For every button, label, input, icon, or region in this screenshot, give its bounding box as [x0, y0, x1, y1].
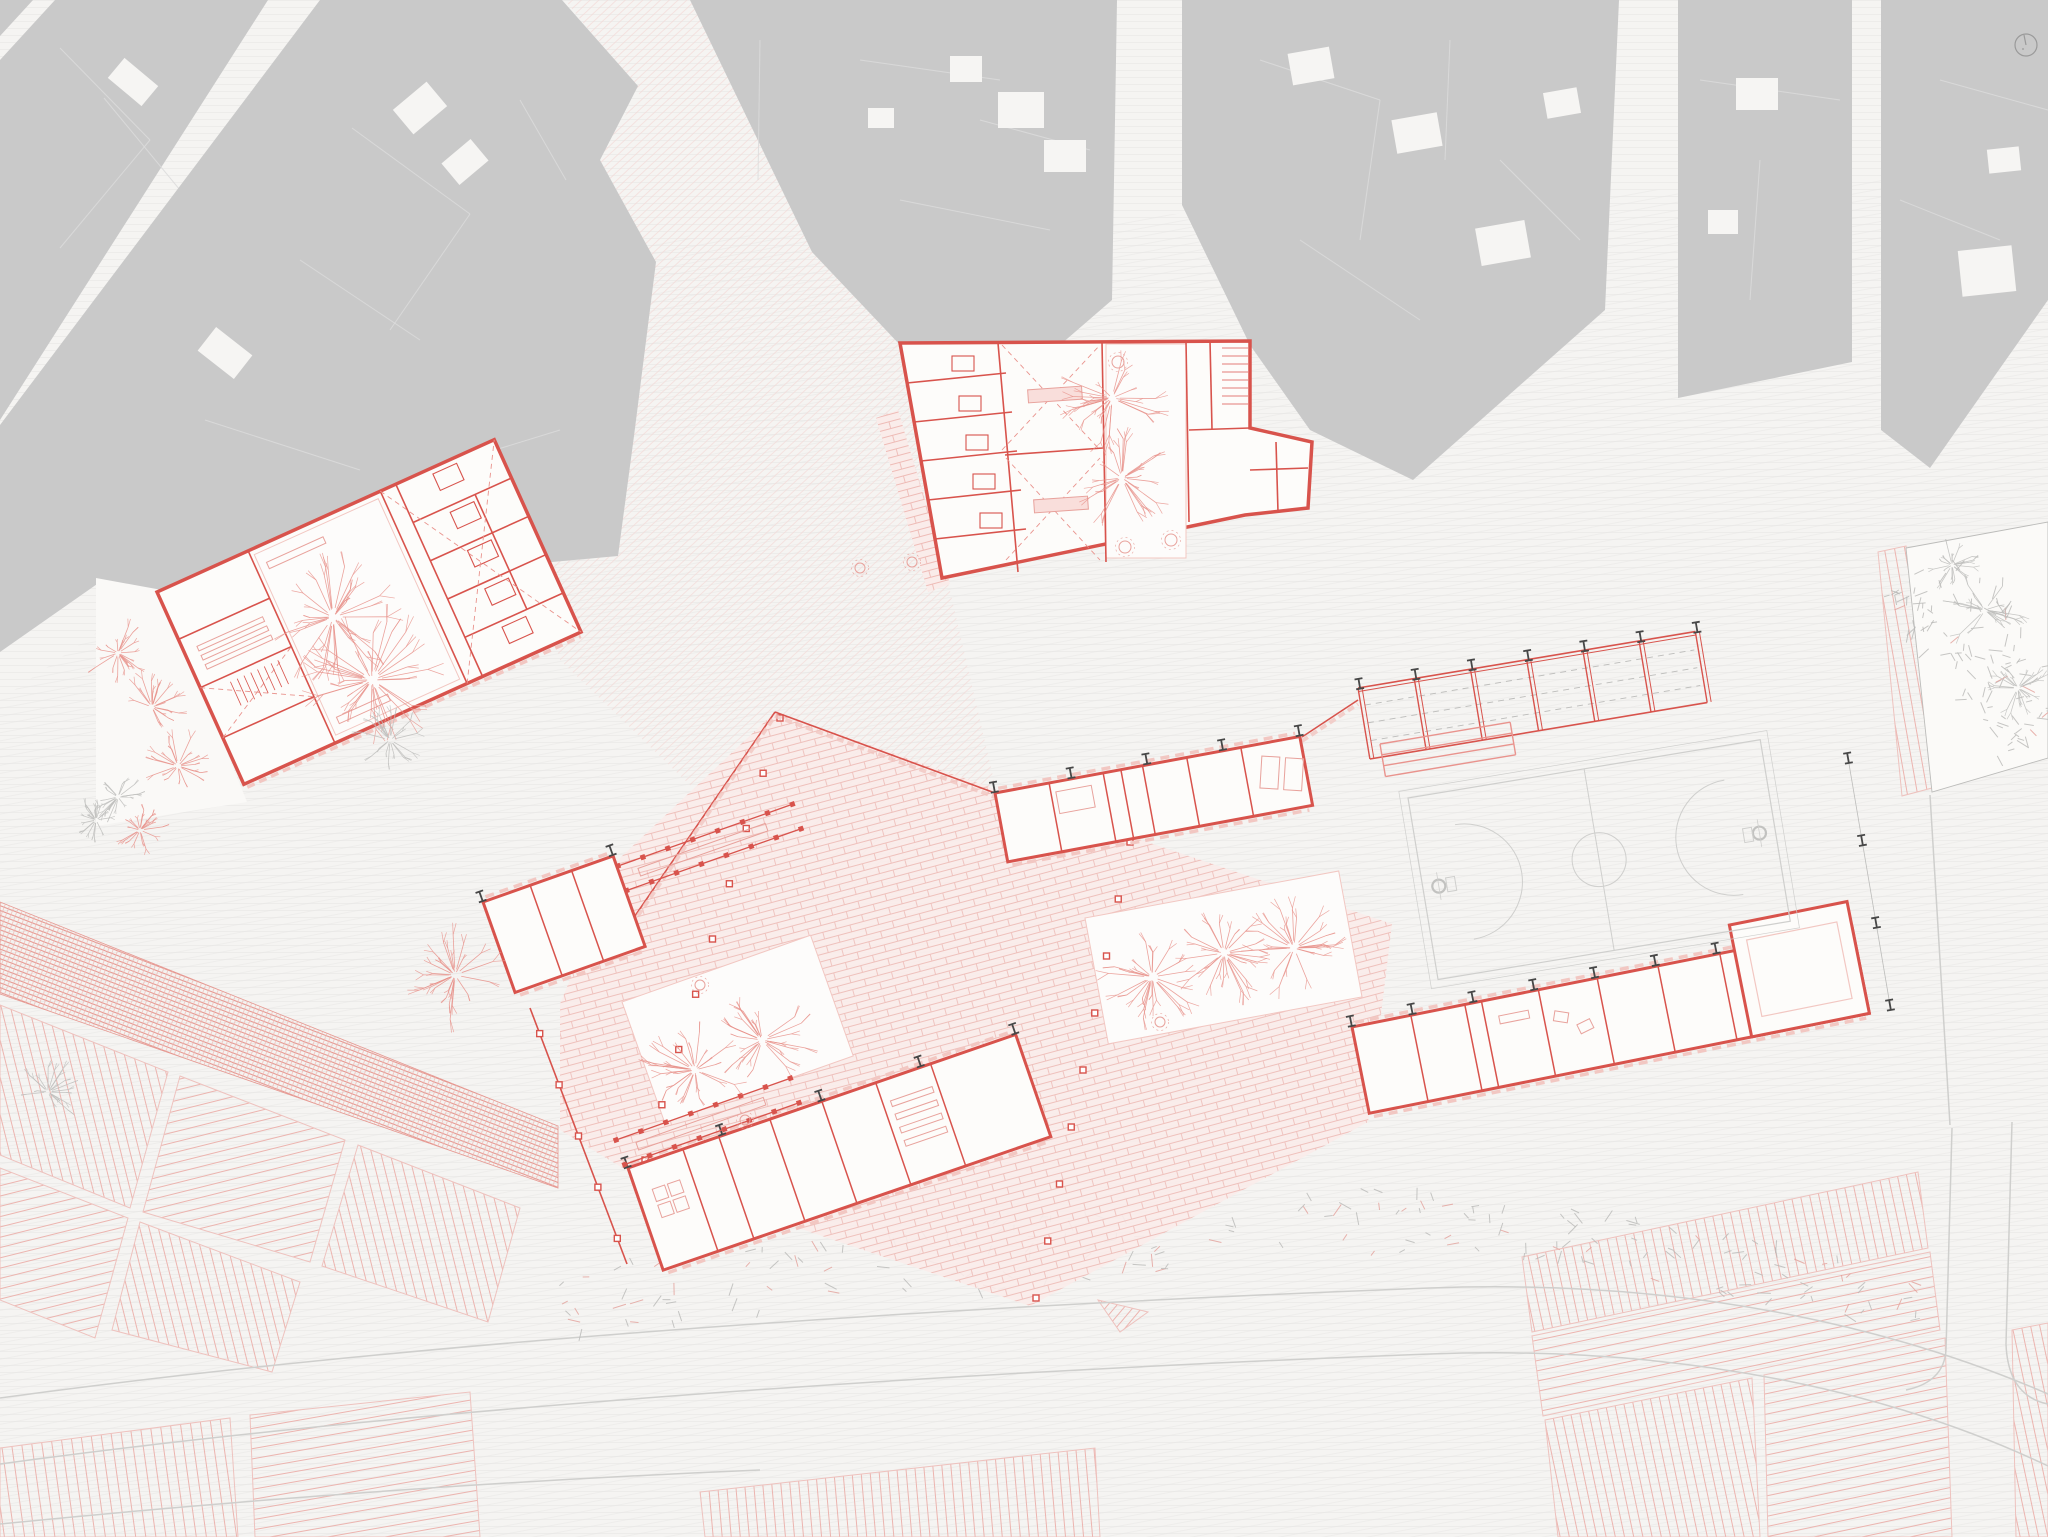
- post-icon: [1057, 1181, 1063, 1187]
- post-icon: [1115, 896, 1121, 902]
- post-icon: [1033, 1295, 1039, 1301]
- post-icon: [1092, 1010, 1098, 1016]
- post-icon: [1068, 1124, 1074, 1130]
- post-icon: [710, 936, 716, 942]
- post-icon: [726, 881, 732, 887]
- field-parcel: [2012, 1323, 2048, 1537]
- post-icon: [1080, 1067, 1086, 1073]
- city-block: [1678, 0, 1852, 398]
- site-plan-drawing: [0, 0, 2048, 1537]
- post-icon: [1045, 1238, 1051, 1244]
- post-icon: [659, 1102, 665, 1108]
- field-parcel: [250, 1392, 480, 1537]
- post-icon: [760, 770, 766, 776]
- post-icon: [1104, 953, 1110, 959]
- post-icon: [693, 991, 699, 997]
- site-plan-viewport[interactable]: [0, 0, 2048, 1537]
